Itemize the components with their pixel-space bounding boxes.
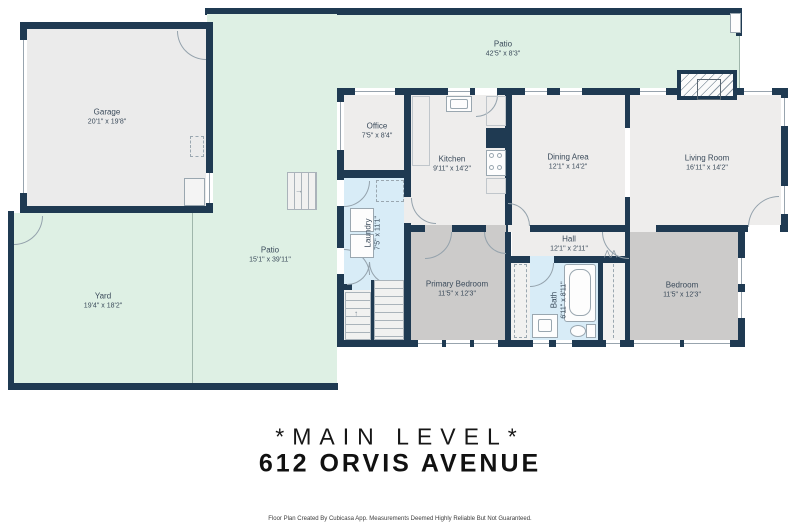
closet-hall-divider bbox=[613, 264, 614, 338]
laundry-counter bbox=[376, 180, 404, 202]
kitchen-top-window bbox=[448, 88, 470, 95]
stove-burner bbox=[489, 165, 494, 170]
toilet-bowl bbox=[570, 325, 586, 337]
patio-right-edge-line bbox=[739, 36, 740, 88]
living-top-window-2 bbox=[744, 88, 772, 95]
room-label-bath: Bath6'11" x 8'11" bbox=[549, 281, 570, 318]
office-left-window bbox=[337, 102, 344, 150]
garage-corner-fixture bbox=[184, 178, 205, 206]
office-top-window bbox=[355, 88, 395, 95]
room-label-patio-left: Patio15'1" x 39'11" bbox=[249, 245, 291, 266]
stairs-upper-flight bbox=[374, 280, 404, 340]
bath-bottom-window-1 bbox=[533, 340, 549, 347]
living-right-window-2 bbox=[781, 186, 788, 214]
dining-hall-door-opening bbox=[508, 225, 530, 232]
fireplace-firebox bbox=[697, 79, 721, 100]
room-label-laundry: Laundry7'5" x 11'1" bbox=[363, 216, 384, 250]
bath-bottom-window-2 bbox=[556, 340, 572, 347]
closet-hall-floor bbox=[603, 263, 625, 340]
primary-bottom-window-1 bbox=[418, 340, 442, 347]
dining-living-stub-top bbox=[625, 95, 630, 128]
room-label-hall: Hall12'1" x 2'11" bbox=[550, 234, 588, 255]
kitchen-counter-below bbox=[486, 178, 506, 194]
laundry-door-opening-2 bbox=[337, 248, 344, 274]
closet-primary-dashes bbox=[514, 264, 527, 338]
chimney-notch bbox=[730, 13, 741, 33]
room-label-dining: Dining Area12'1" x 14'2" bbox=[547, 152, 588, 173]
living-top-window-1 bbox=[640, 88, 666, 95]
garage-door-opening bbox=[20, 40, 27, 193]
stairs-lower-flight bbox=[345, 292, 371, 340]
bath-right-wall bbox=[598, 256, 603, 340]
closet-bifold-marks: ⋀⋀ bbox=[604, 250, 617, 258]
room-label-primary-bedroom: Primary Bedroom11'5" x 12'3" bbox=[426, 279, 488, 300]
toilet-tank bbox=[586, 324, 596, 338]
kitchen-back-door-opening bbox=[475, 88, 497, 95]
yard-patio-divider-line bbox=[192, 213, 193, 383]
level-title: *MAIN LEVEL* bbox=[275, 424, 524, 451]
disclaimer-footer: Floor Plan Created By Cubicasa App. Meas… bbox=[268, 516, 531, 522]
bedroom-bottom-window-1 bbox=[634, 340, 680, 347]
bedroom-right-window-2 bbox=[738, 292, 745, 318]
kitchen-counter-right bbox=[486, 96, 506, 126]
stove-burner bbox=[497, 165, 502, 170]
room-label-bedroom: Bedroom11'5" x 12'3" bbox=[663, 280, 701, 301]
stairs-divider bbox=[371, 280, 374, 340]
room-label-office: Office7'5" x 8'4" bbox=[362, 121, 393, 142]
vanity-sink bbox=[538, 319, 552, 332]
primary-bottom-window-2 bbox=[446, 340, 470, 347]
laundry-door-opening-1 bbox=[337, 180, 344, 206]
room-label-patio-top: Patio42'5" x 8'3" bbox=[486, 39, 521, 60]
room-label-living: Living Room16'11" x 14'2" bbox=[685, 153, 729, 174]
floor-plan-page: → bbox=[0, 0, 800, 527]
bedroom-right-window-1 bbox=[738, 258, 745, 284]
patio-left-area bbox=[207, 14, 337, 384]
living-right-window-1 bbox=[781, 98, 788, 126]
primary-bottom-window-3 bbox=[474, 340, 498, 347]
stair-direction-arrow: → bbox=[295, 187, 303, 195]
garage-water-heater bbox=[190, 136, 204, 157]
bath-door-opening bbox=[530, 256, 554, 263]
address-title: 612 ORVIS AVENUE bbox=[259, 450, 541, 479]
room-label-garage: Garage20'1" x 19'8" bbox=[88, 107, 126, 128]
garage-side-door-opening bbox=[206, 173, 213, 203]
primary-door-opening-2 bbox=[486, 225, 506, 232]
dining-top-window-1 bbox=[525, 88, 547, 95]
primary-door-opening bbox=[425, 225, 452, 232]
mid-horizontal-wall bbox=[404, 225, 788, 232]
stair-direction-arrow-up: ↑ bbox=[354, 310, 358, 318]
closet-bottom-window bbox=[606, 340, 620, 347]
bedroom-bottom-window-2 bbox=[684, 340, 730, 347]
kitchen-sink-basin bbox=[450, 99, 468, 109]
kitchen-counter-left bbox=[412, 96, 430, 166]
room-label-kitchen: Kitchen9'11" x 14'2" bbox=[433, 154, 471, 175]
stove-burner bbox=[489, 153, 494, 158]
office-bottom-wall bbox=[337, 170, 411, 178]
dining-top-window-2 bbox=[560, 88, 582, 95]
bedroom-door-opening bbox=[630, 225, 656, 232]
refrigerator bbox=[486, 128, 506, 148]
bathtub-basin bbox=[569, 269, 591, 316]
house-right-wall-lower bbox=[738, 225, 745, 347]
stove-burner bbox=[497, 153, 502, 158]
laundry-kitchen-door-opening bbox=[404, 197, 411, 223]
room-label-yard: Yard19'4" x 18'2" bbox=[84, 291, 122, 312]
yard-bottom-wall bbox=[8, 383, 338, 390]
